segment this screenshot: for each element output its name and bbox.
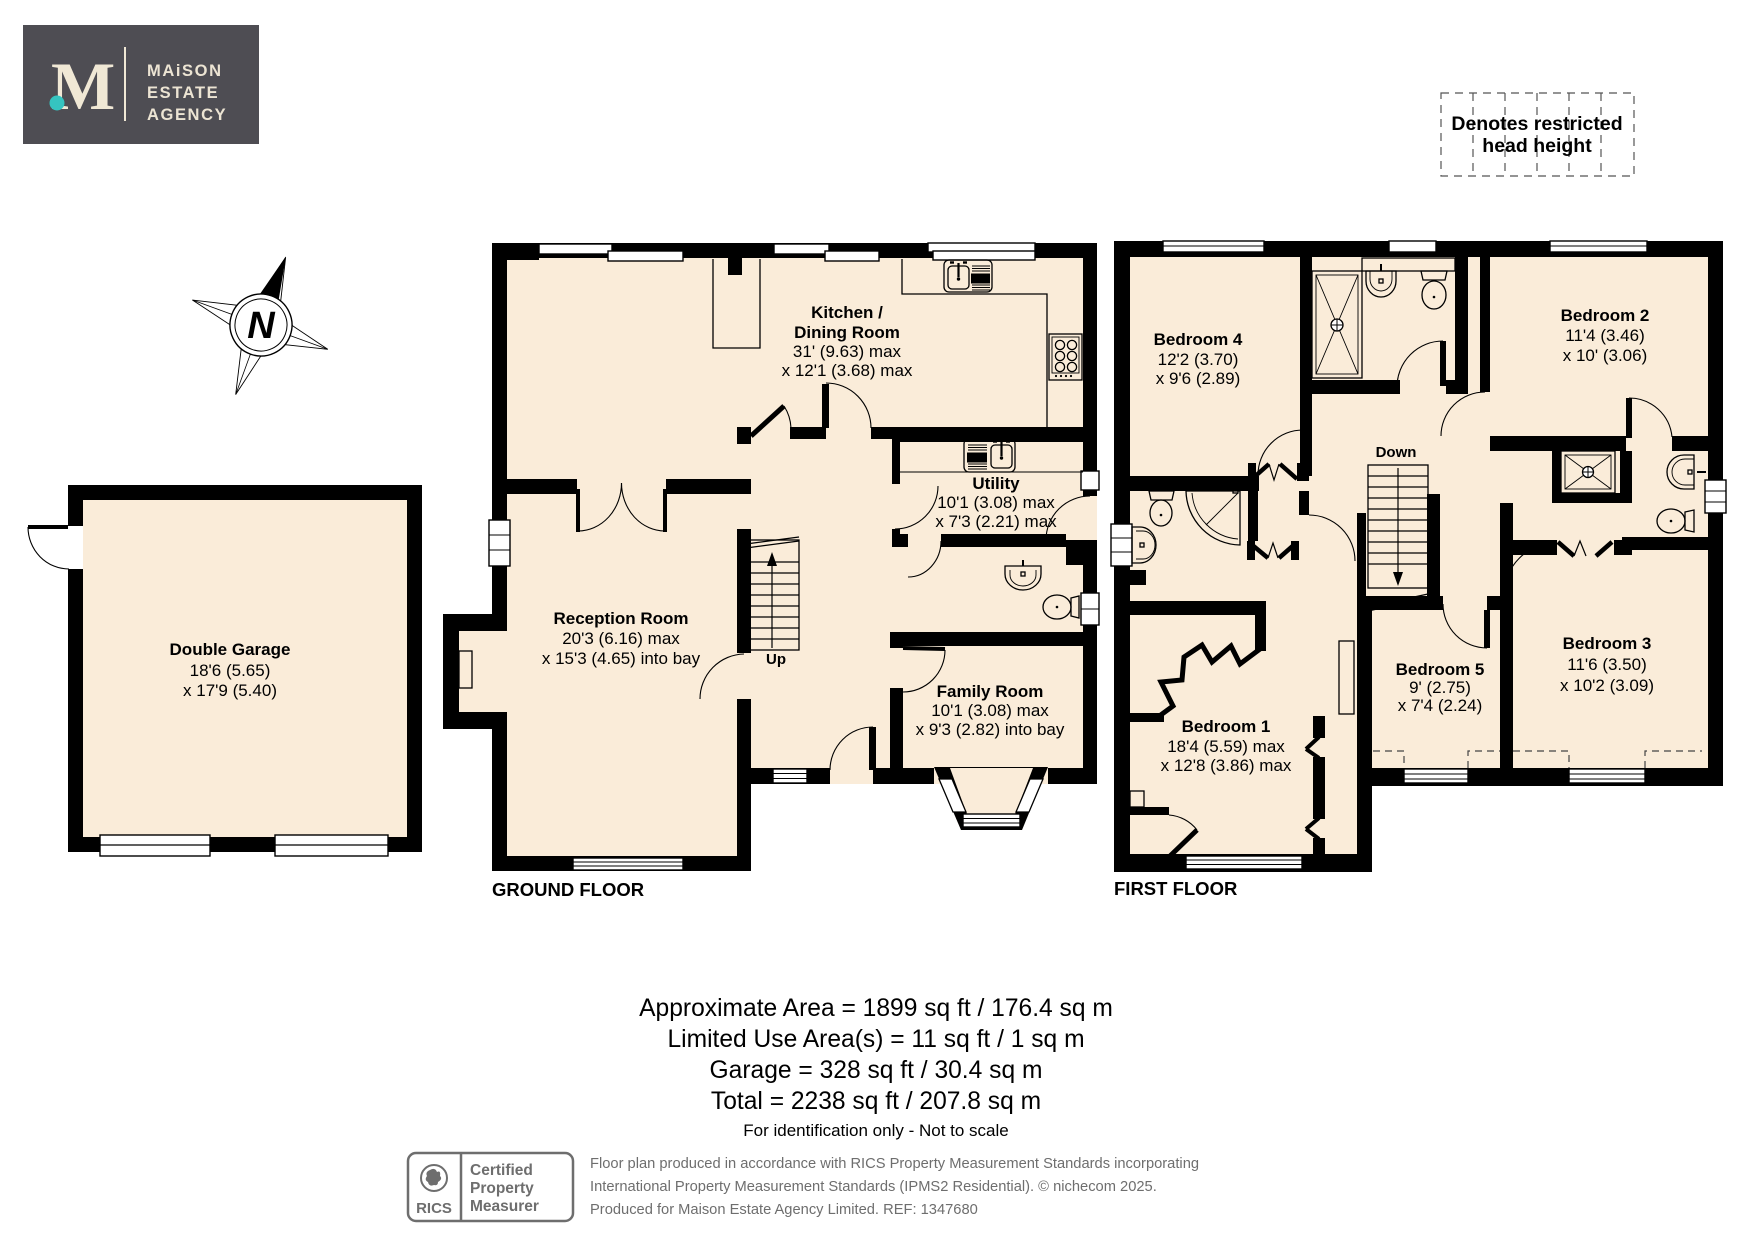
svg-text:Reception Room: Reception Room — [553, 609, 688, 628]
svg-text:x 12'8 (3.86) max: x 12'8 (3.86) max — [1161, 756, 1292, 775]
svg-text:head height: head height — [1482, 135, 1592, 157]
svg-text:Bedroom 1: Bedroom 1 — [1182, 717, 1271, 736]
svg-text:International Property Measure: International Property Measurement Stand… — [590, 1179, 1157, 1195]
svg-text:18'6 (5.65): 18'6 (5.65) — [190, 661, 271, 680]
svg-text:Double Garage: Double Garage — [170, 640, 291, 659]
svg-text:Family Room: Family Room — [937, 682, 1044, 701]
svg-text:Dining Room: Dining Room — [794, 323, 900, 342]
svg-text:Certified: Certified — [470, 1162, 533, 1179]
svg-text:Bedroom 3: Bedroom 3 — [1563, 634, 1652, 653]
svg-text:x 10'2 (3.09): x 10'2 (3.09) — [1560, 676, 1654, 695]
svg-text:FIRST FLOOR: FIRST FLOOR — [1114, 878, 1237, 899]
svg-text:Measurer: Measurer — [470, 1198, 539, 1215]
svg-text:Approximate Area = 1899 sq ft: Approximate Area = 1899 sq ft / 176.4 sq… — [639, 995, 1113, 1022]
svg-text:Denotes restricted: Denotes restricted — [1451, 113, 1622, 135]
svg-text:N: N — [247, 305, 276, 347]
svg-text:AGENCY: AGENCY — [147, 106, 227, 124]
svg-text:x 10' (3.06): x 10' (3.06) — [1563, 346, 1648, 365]
svg-text:Garage = 328 sq ft / 30.4 sq m: Garage = 328 sq ft / 30.4 sq m — [710, 1057, 1043, 1084]
svg-text:ESTATE: ESTATE — [147, 84, 219, 102]
svg-text:RICS: RICS — [416, 1200, 452, 1217]
svg-text:Produced for Maison Estate Age: Produced for Maison Estate Agency Limite… — [590, 1202, 978, 1218]
svg-text:x 15'3 (4.65) into bay: x 15'3 (4.65) into bay — [542, 649, 701, 668]
svg-text:MAiSON: MAiSON — [147, 62, 223, 80]
svg-text:18'4 (5.59) max: 18'4 (5.59) max — [1167, 737, 1285, 756]
svg-text:Bedroom 5: Bedroom 5 — [1396, 660, 1485, 679]
svg-text:Limited Use Area(s) = 11 sq ft: Limited Use Area(s) = 11 sq ft / 1 sq m — [667, 1026, 1084, 1053]
svg-text:11'6 (3.50): 11'6 (3.50) — [1567, 655, 1646, 674]
svg-text:x 9'3 (2.82) into bay: x 9'3 (2.82) into bay — [916, 720, 1065, 739]
svg-text:x 12'1 (3.68) max: x 12'1 (3.68) max — [782, 361, 913, 380]
svg-text:Total = 2238 sq ft / 207.8 sq: Total = 2238 sq ft / 207.8 sq m — [711, 1088, 1041, 1115]
svg-text:11'4 (3.46): 11'4 (3.46) — [1565, 326, 1644, 345]
svg-text:10'1 (3.08) max: 10'1 (3.08) max — [937, 493, 1055, 512]
svg-text:x 17'9 (5.40): x 17'9 (5.40) — [183, 681, 277, 700]
svg-text:9' (2.75): 9' (2.75) — [1409, 678, 1471, 697]
svg-text:For identification only - Not: For identification only - Not to scale — [743, 1121, 1009, 1140]
svg-text:12'2 (3.70): 12'2 (3.70) — [1158, 350, 1239, 369]
svg-text:Bedroom 2: Bedroom 2 — [1561, 306, 1650, 325]
svg-text:x 7'3 (2.21) max: x 7'3 (2.21) max — [935, 512, 1057, 531]
svg-text:M: M — [51, 48, 115, 124]
svg-text:Kitchen /: Kitchen / — [811, 303, 883, 322]
svg-text:Property: Property — [470, 1180, 534, 1197]
svg-text:10'1 (3.08) max: 10'1 (3.08) max — [931, 701, 1049, 720]
svg-text:x 9'6 (2.89): x 9'6 (2.89) — [1156, 369, 1241, 388]
svg-text:Utility: Utility — [972, 474, 1020, 493]
svg-text:Down: Down — [1376, 444, 1417, 461]
svg-text:31' (9.63) max: 31' (9.63) max — [793, 342, 902, 361]
svg-text:GROUND FLOOR: GROUND FLOOR — [492, 879, 644, 900]
svg-text:Up: Up — [766, 651, 786, 668]
svg-text:Bedroom 4: Bedroom 4 — [1154, 330, 1243, 349]
svg-text:x 7'4 (2.24): x 7'4 (2.24) — [1398, 696, 1483, 715]
svg-text:Floor plan produced in accorda: Floor plan produced in accordance with R… — [590, 1156, 1199, 1172]
svg-text:20'3 (6.16) max: 20'3 (6.16) max — [562, 629, 680, 648]
